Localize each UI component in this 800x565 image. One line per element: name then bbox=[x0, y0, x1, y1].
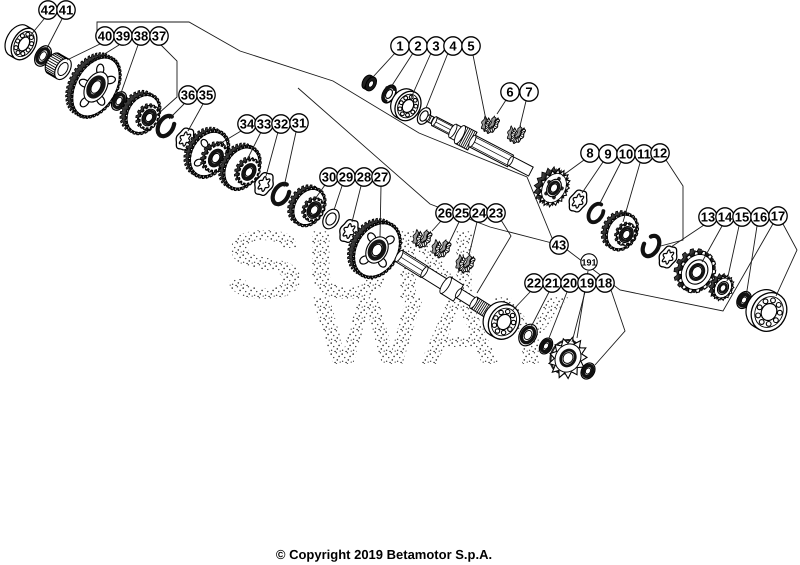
svg-text:11: 11 bbox=[637, 147, 651, 162]
svg-text:19: 19 bbox=[580, 276, 594, 291]
svg-text:© Copyright 2019 Betamotor S.p: © Copyright 2019 Betamotor S.p.A. bbox=[276, 547, 492, 562]
svg-text:26: 26 bbox=[438, 206, 452, 221]
svg-text:17: 17 bbox=[771, 209, 785, 224]
svg-text:191: 191 bbox=[581, 258, 596, 268]
svg-text:12: 12 bbox=[653, 146, 667, 161]
svg-text:14: 14 bbox=[718, 210, 733, 225]
svg-text:36: 36 bbox=[181, 88, 195, 103]
svg-text:10: 10 bbox=[619, 147, 633, 162]
svg-text:38: 38 bbox=[134, 29, 148, 44]
svg-text:16: 16 bbox=[753, 210, 767, 225]
svg-text:15: 15 bbox=[735, 210, 749, 225]
svg-text:43: 43 bbox=[552, 238, 566, 253]
svg-text:13: 13 bbox=[701, 210, 715, 225]
svg-text:40: 40 bbox=[98, 29, 112, 44]
svg-text:27: 27 bbox=[374, 170, 388, 185]
svg-text:28: 28 bbox=[357, 170, 371, 185]
svg-text:6: 6 bbox=[506, 85, 513, 100]
svg-text:23: 23 bbox=[489, 206, 503, 221]
svg-text:22: 22 bbox=[527, 276, 541, 291]
svg-text:9: 9 bbox=[604, 147, 611, 162]
svg-text:20: 20 bbox=[563, 276, 577, 291]
svg-text:3: 3 bbox=[432, 39, 439, 54]
svg-text:8: 8 bbox=[586, 146, 593, 161]
svg-text:35: 35 bbox=[199, 88, 213, 103]
svg-text:1: 1 bbox=[396, 39, 403, 54]
svg-text:41: 41 bbox=[59, 3, 73, 18]
svg-text:4: 4 bbox=[449, 39, 457, 54]
svg-text:39: 39 bbox=[116, 29, 130, 44]
svg-text:25: 25 bbox=[455, 206, 469, 221]
svg-text:30: 30 bbox=[322, 170, 336, 185]
svg-text:2: 2 bbox=[414, 39, 421, 54]
svg-text:34: 34 bbox=[240, 117, 255, 132]
svg-text:37: 37 bbox=[152, 29, 166, 44]
svg-text:32: 32 bbox=[274, 117, 288, 132]
svg-text:7: 7 bbox=[525, 85, 532, 100]
svg-text:21: 21 bbox=[545, 276, 559, 291]
svg-text:33: 33 bbox=[257, 117, 271, 132]
svg-text:24: 24 bbox=[472, 206, 487, 221]
svg-text:5: 5 bbox=[467, 39, 474, 54]
svg-text:42: 42 bbox=[41, 3, 55, 18]
svg-text:18: 18 bbox=[598, 276, 612, 291]
svg-text:31: 31 bbox=[292, 116, 306, 131]
svg-text:29: 29 bbox=[339, 170, 353, 185]
